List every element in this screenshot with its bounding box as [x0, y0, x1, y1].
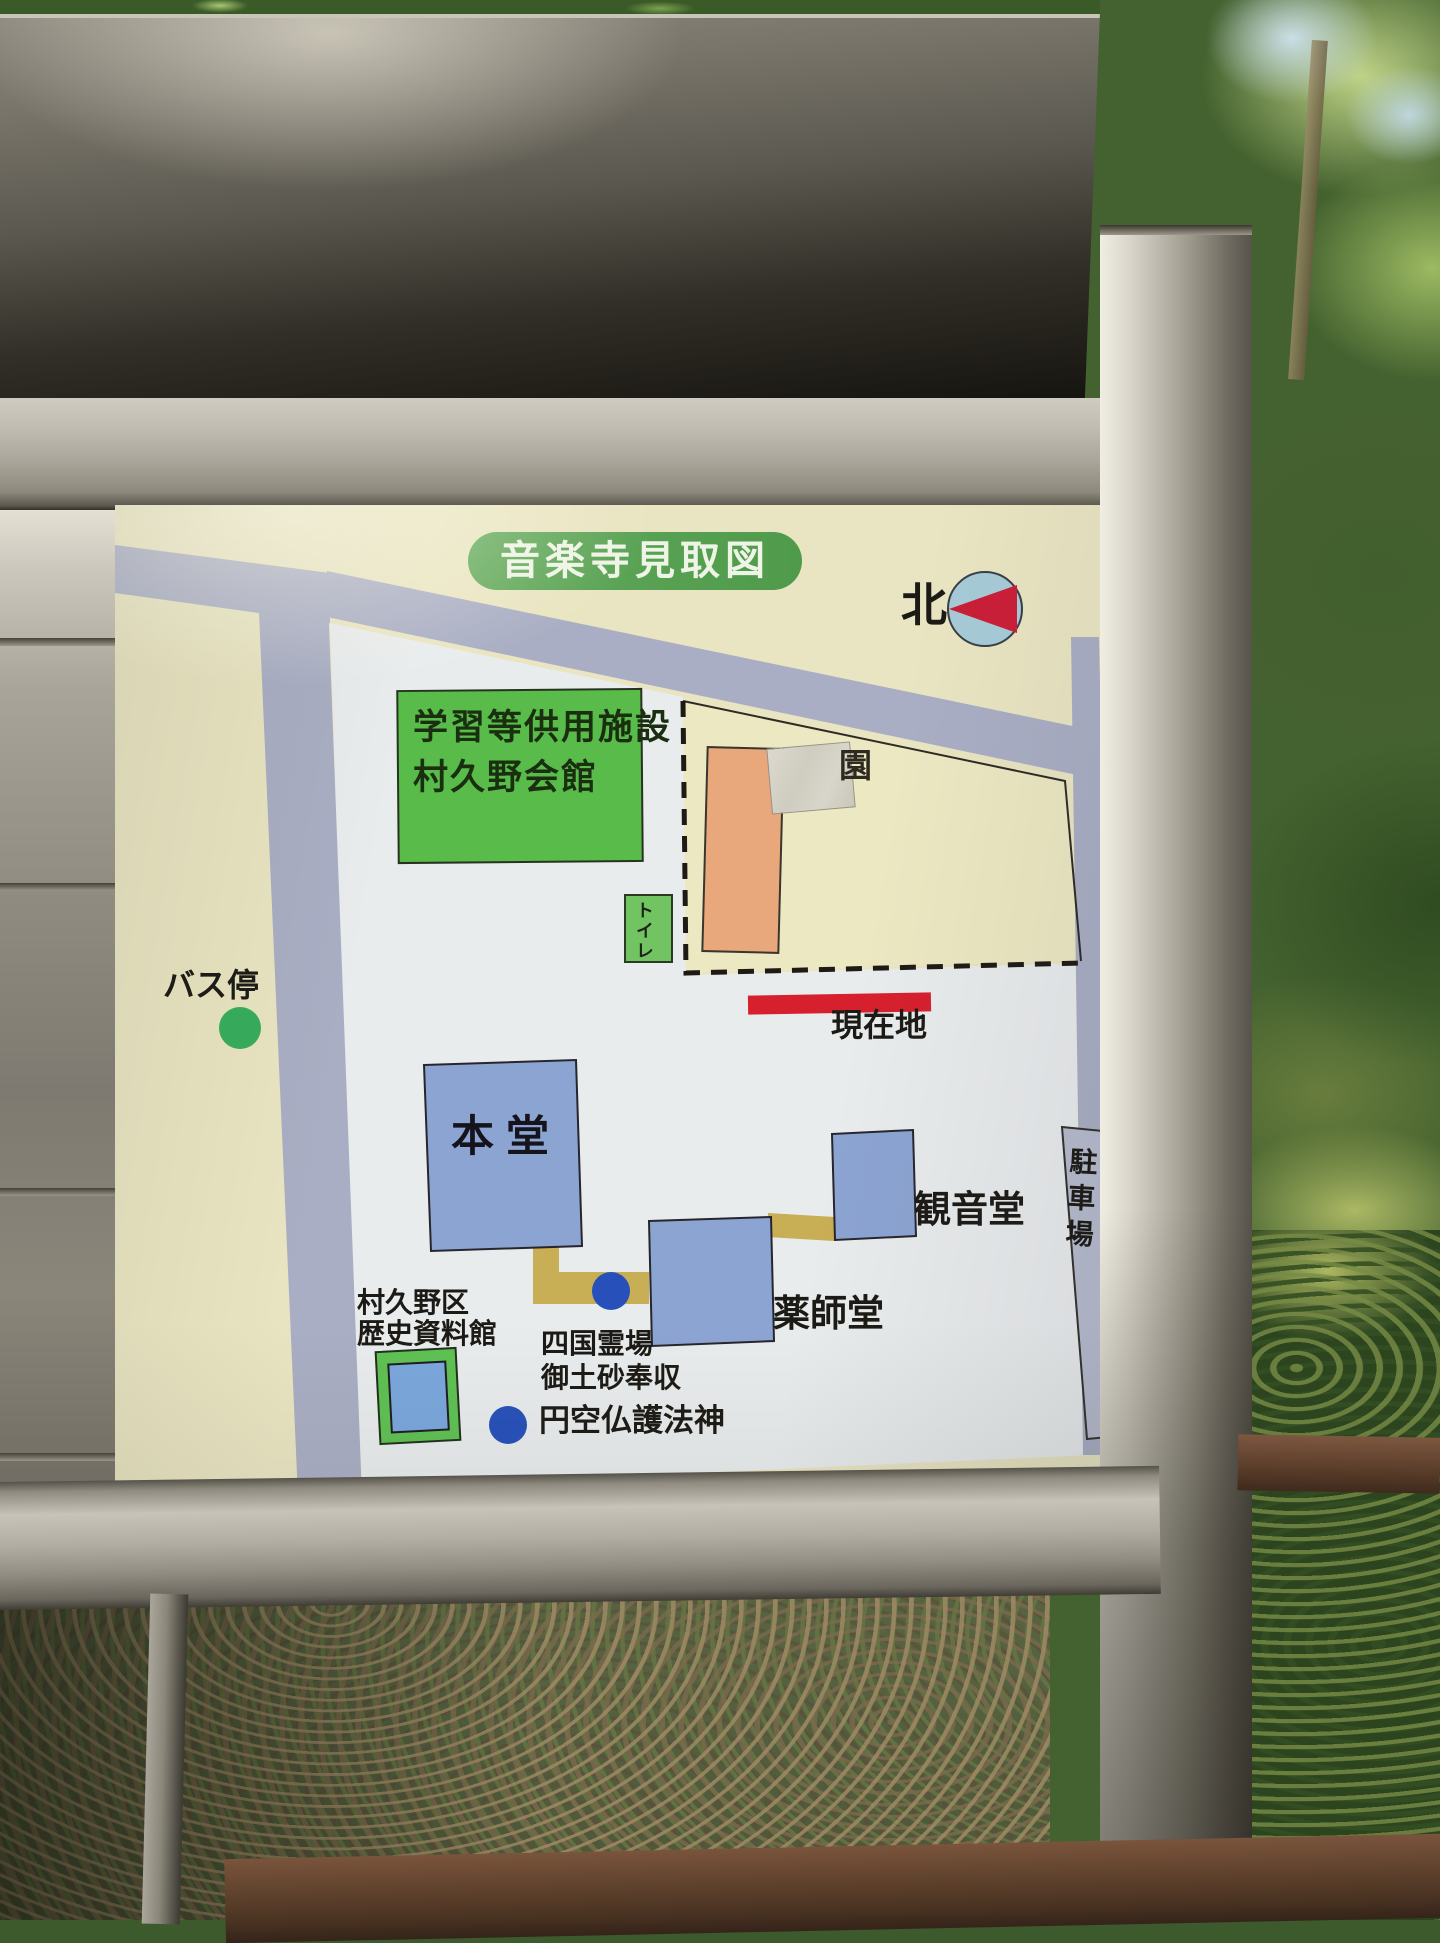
history-museum-building — [376, 1348, 461, 1444]
history-museum-label-line1: 村久野区 — [357, 1287, 497, 1318]
bushes-right — [1235, 1230, 1440, 1920]
temple-map-board: 音楽寺見取図 北 学習等供用施設 村久野会館 園 トイレ 現在地 バス停 本 堂… — [115, 505, 1115, 1500]
fence-rail-right — [1238, 1434, 1440, 1494]
shikoku-site-dot — [592, 1272, 630, 1310]
parking-label: 駐車場 — [1062, 1146, 1097, 1255]
foliage-strip-top — [0, 0, 1100, 14]
bus-stop-label: バス停 — [163, 969, 259, 1003]
photo-of-temple-map-signboard: 音楽寺見取図 北 学習等供用施設 村久野会館 園 トイレ 現在地 バス停 本 堂… — [0, 0, 1440, 1920]
shikoku-site-label-line2: 御土砂奉収 — [541, 1361, 681, 1395]
signboard-right-post — [1100, 225, 1252, 1920]
panel-groove — [0, 883, 116, 891]
adjacent-metal-panel — [0, 510, 116, 1510]
map-title: 音楽寺見取図 — [468, 532, 802, 590]
panel-groove — [0, 1453, 116, 1461]
panel-groove — [0, 1188, 116, 1196]
panel-groove — [0, 638, 116, 646]
path-between-halls — [767, 1213, 835, 1241]
main-hall-label: 本 堂 — [451, 1115, 549, 1160]
history-museum-label-line2: 歴史資料館 — [357, 1318, 497, 1349]
bus-stop-dot — [219, 1007, 261, 1049]
community-hall-label-line2: 村久野会館 — [413, 753, 672, 803]
enku-deity-label: 円空仏護法神 — [539, 1405, 725, 1438]
toilet-label: トイレ — [634, 901, 653, 961]
nursery-label-partial: 園 — [839, 749, 872, 784]
kannon-hall-building — [832, 1130, 916, 1240]
yakushi-hall-label: 薬師堂 — [773, 1295, 884, 1334]
kannon-hall-label: 観音堂 — [914, 1191, 1025, 1230]
history-museum-label: 村久野区 歴史資料館 — [357, 1287, 497, 1349]
signboard-roof — [0, 12, 1100, 406]
enku-deity-dot — [489, 1406, 527, 1444]
compass-north-label: 北 — [901, 581, 947, 629]
signboard-top-beam — [0, 398, 1110, 510]
signboard-bottom-beam — [0, 1466, 1161, 1610]
community-hall-label: 学習等供用施設 村久野会館 — [413, 703, 672, 803]
current-location-label: 現在地 — [831, 1009, 927, 1043]
shikoku-site-label-line1: 四国霊場 — [541, 1327, 681, 1361]
shikoku-site-label: 四国霊場 御土砂奉収 — [541, 1327, 681, 1395]
community-hall-label-line1: 学習等供用施設 — [413, 703, 672, 753]
